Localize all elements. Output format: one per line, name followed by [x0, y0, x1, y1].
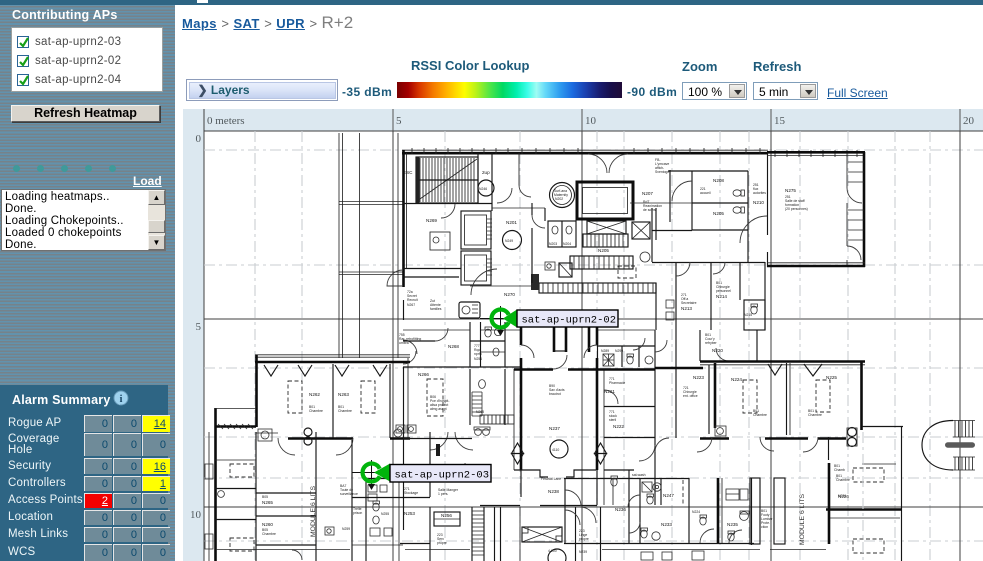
svg-text:2up: 2up	[482, 170, 490, 175]
svg-text:N205: N205	[598, 248, 609, 253]
svg-text:MODULE 6 LITS: MODULE 6 LITS	[310, 486, 317, 537]
svg-text:Pharmacie: Pharmacie	[609, 381, 625, 385]
svg-text:N233: N233	[661, 522, 672, 527]
svg-text:Festival Lane: Festival Lane	[541, 477, 561, 481]
svg-text:N259: N259	[342, 527, 350, 531]
svg-text:N223: N223	[693, 375, 704, 380]
svg-text:N215: N215	[744, 313, 752, 317]
svg-text:N208: N208	[713, 178, 724, 183]
svg-text:de soins: de soins	[643, 208, 656, 212]
svg-text:B05: B05	[262, 495, 268, 499]
svg-text:ent. office: ent. office	[683, 394, 698, 398]
svg-text:N275: N275	[785, 188, 796, 193]
svg-text:N260: N260	[262, 522, 273, 527]
svg-text:N239: N239	[579, 550, 587, 554]
svg-text:Secretaire: Secretaire	[681, 301, 697, 305]
svg-text:(20 personnes): (20 personnes)	[785, 207, 808, 211]
svg-text:Chambre: Chambre	[262, 532, 276, 536]
svg-text:prison: prison	[353, 511, 362, 515]
svg-text:4110: 4110	[552, 448, 559, 452]
svg-text:sat-wash: sat-wash	[632, 473, 646, 477]
svg-text:MODULE 6 LITS: MODULE 6 LITS	[799, 494, 806, 545]
svg-text:N249: N249	[505, 239, 513, 243]
svg-text:sat-ap-uprn2-03: sat-ap-uprn2-03	[395, 470, 490, 482]
svg-text:4-100: 4-100	[548, 549, 557, 553]
svg-text:Chambre: Chambre	[309, 409, 323, 413]
svg-text:0 meters: 0 meters	[207, 115, 245, 127]
svg-text:N224: N224	[692, 510, 700, 514]
svg-text:Chambre: Chambre	[338, 409, 352, 413]
svg-text:20: 20	[963, 115, 975, 127]
svg-text:N225: N225	[826, 375, 837, 380]
svg-text:N267: N267	[407, 303, 415, 307]
svg-text:personnel: personnel	[716, 289, 731, 293]
svg-text:10: 10	[190, 509, 202, 521]
svg-text:familles: familles	[430, 307, 442, 311]
svg-text:N246: N246	[479, 187, 487, 191]
svg-text:ction: ction	[761, 525, 768, 529]
svg-text:N236: N236	[615, 507, 626, 512]
svg-text:N262: N262	[309, 392, 320, 397]
svg-text:accueil: accueil	[700, 191, 711, 195]
svg-text:Chambre: Chambre	[836, 478, 850, 482]
svg-text:sat-ap-uprn2-02: sat-ap-uprn2-02	[522, 315, 617, 327]
svg-text:N290: N290	[615, 349, 623, 353]
svg-text:N256: N256	[441, 513, 452, 518]
svg-text:i: i	[120, 394, 123, 405]
svg-text:N237: N237	[549, 426, 560, 431]
svg-text:N207: N207	[642, 191, 653, 196]
svg-text:1 pers.: 1 pers.	[438, 492, 448, 496]
svg-text:N210: N210	[753, 200, 764, 205]
svg-text:almg asept: almg asept	[430, 407, 447, 411]
svg-text:N204: N204	[563, 242, 571, 246]
svg-text:N224: N224	[731, 377, 742, 382]
svg-text:0: 0	[196, 133, 202, 145]
svg-text:refryber: refryber	[705, 341, 718, 345]
svg-text:5: 5	[196, 321, 202, 333]
svg-text:propre: propre	[437, 541, 447, 545]
svg-text:10: 10	[585, 115, 597, 127]
svg-text:surveillance: surveillance	[340, 492, 358, 496]
svg-text:autorites: autorites	[753, 191, 766, 195]
svg-text:Chamb: Chamb	[834, 468, 845, 472]
svg-text:ESC: ESC	[403, 170, 413, 175]
svg-text:N238: N238	[548, 489, 559, 494]
svg-text:Chambre: Chambre	[808, 413, 822, 417]
svg-text:N202: N202	[555, 197, 563, 201]
svg-text:Sventoge: Sventoge	[655, 170, 669, 174]
svg-text:N263: N263	[338, 392, 349, 397]
svg-text:N220: N220	[712, 348, 723, 353]
svg-text:N289: N289	[601, 349, 609, 353]
svg-text:Recruit: Recruit	[407, 298, 418, 302]
svg-text:N205: N205	[713, 211, 724, 216]
svg-text:N213: N213	[681, 306, 692, 311]
svg-text:N269: N269	[426, 218, 437, 223]
svg-text:N235: N235	[727, 522, 738, 527]
svg-text:N247: N247	[663, 493, 674, 498]
svg-text:propre: propre	[579, 537, 589, 541]
svg-text:N268: N268	[448, 344, 459, 349]
svg-text:N203: N203	[549, 242, 557, 246]
svg-text:Chambre: Chambre	[753, 413, 767, 417]
svg-text:N266: N266	[418, 372, 429, 377]
svg-text:N226: N226	[838, 494, 846, 498]
svg-text:N265: N265	[476, 410, 484, 414]
svg-text:N265: N265	[262, 500, 273, 505]
svg-text:N253: N253	[404, 511, 415, 516]
svg-text:N201: N201	[506, 220, 517, 225]
svg-text:brautrot: brautrot	[549, 392, 561, 396]
svg-text:5: 5	[396, 115, 402, 127]
svg-text:15: 15	[774, 115, 786, 127]
svg-text:steril: steril	[609, 418, 616, 422]
svg-text:N270: N270	[504, 292, 515, 297]
svg-text:umbra: umbra	[399, 341, 409, 345]
svg-text:Stockage: Stockage	[404, 491, 418, 495]
svg-text:N214: N214	[716, 294, 727, 299]
svg-text:N255: N255	[381, 512, 389, 516]
svg-text:N222: N222	[613, 424, 624, 429]
